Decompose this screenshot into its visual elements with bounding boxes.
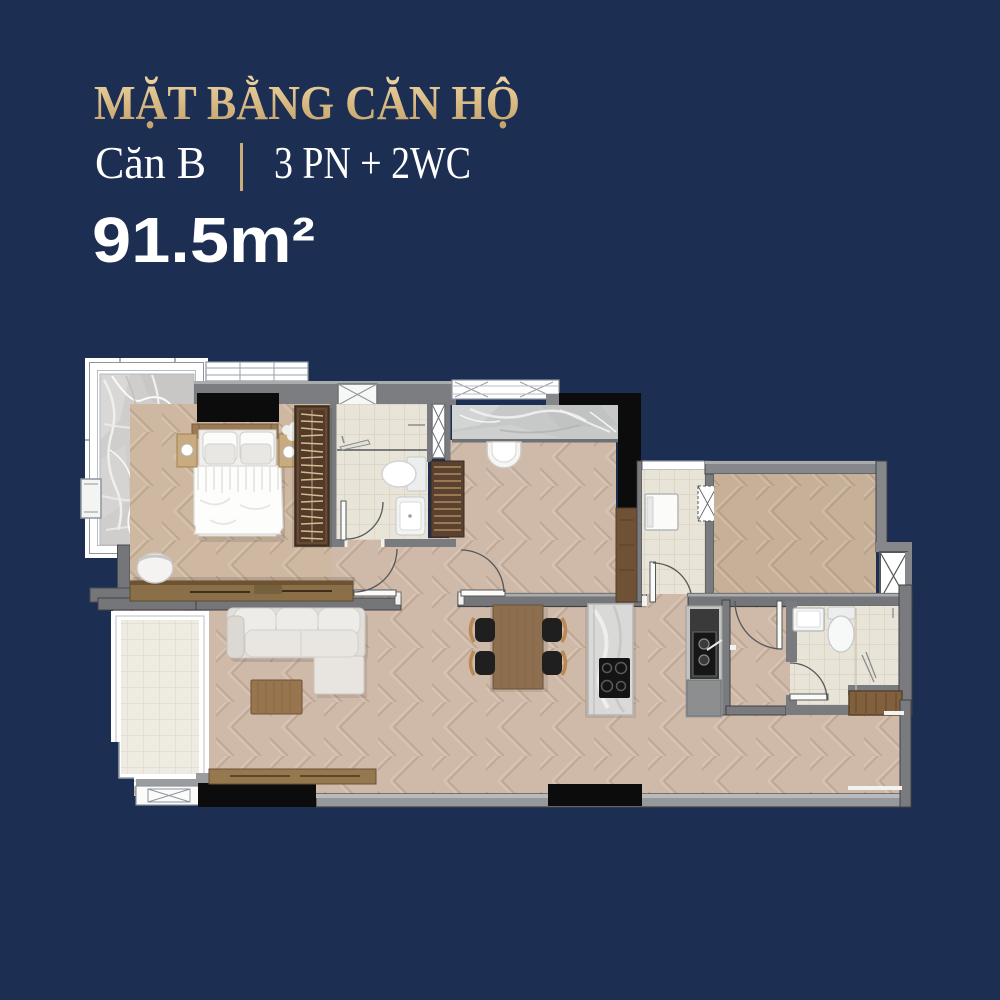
svg-text:91.5m²: 91.5m²: [92, 204, 315, 276]
svg-text:Căn B: Căn B: [95, 137, 206, 188]
svg-text:3 PN + 2WC: 3 PN + 2WC: [274, 137, 471, 188]
svg-text:MẶT BẰNG CĂN HỘ: MẶT BẰNG CĂN HỘ: [94, 75, 520, 130]
